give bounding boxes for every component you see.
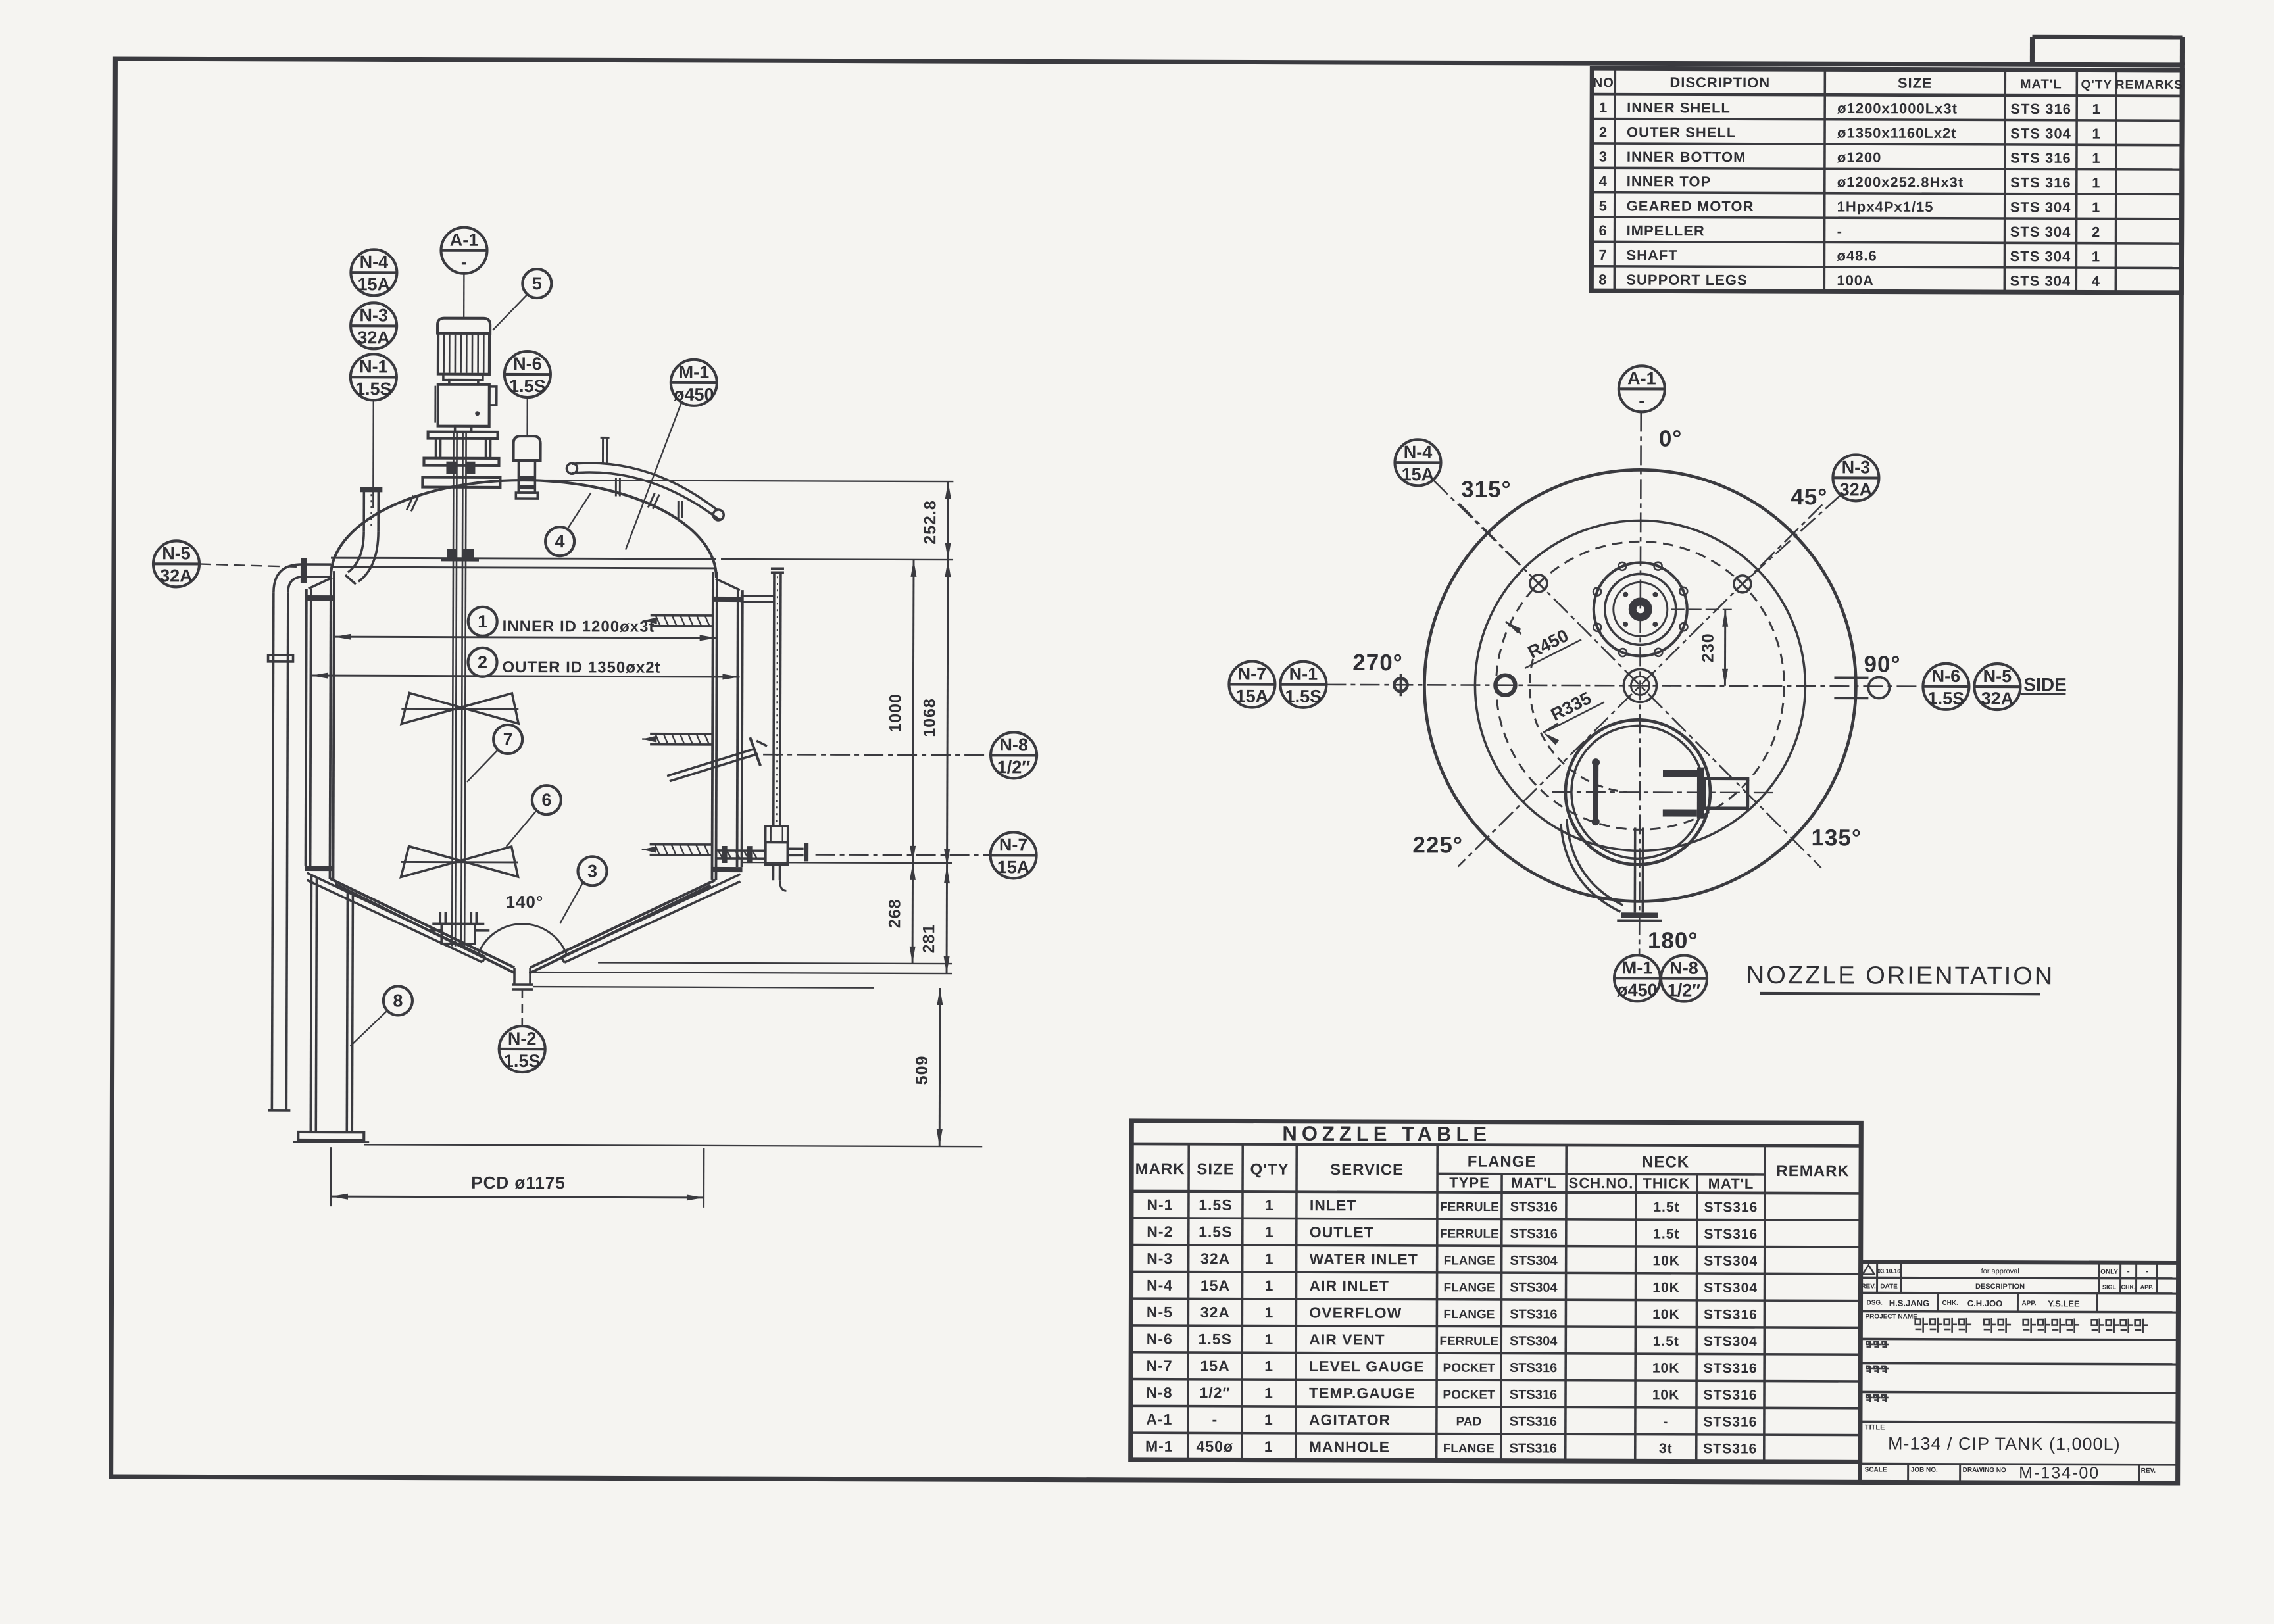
svg-text:1.5t: 1.5t [1653,1227,1679,1242]
svg-text:TEMP.GAUGE: TEMP.GAUGE [1309,1385,1416,1402]
svg-text:3: 3 [587,861,597,881]
svg-text:STS 304: STS 304 [2010,199,2071,215]
svg-text:REV.: REV. [1861,1283,1876,1290]
svg-text:SIDE: SIDE [2023,674,2066,695]
svg-text:SIGL: SIGL [2102,1284,2117,1291]
svg-text:STS304: STS304 [1704,1280,1758,1295]
svg-text:STS 316: STS 316 [2010,174,2071,191]
svg-text:-: - [1212,1411,1218,1428]
svg-text:1.5t: 1.5t [1653,1200,1679,1215]
svg-text:-: - [1639,391,1644,410]
svg-text:STS316: STS316 [1703,1414,1757,1429]
svg-text:AIR VENT: AIR VENT [1309,1331,1385,1348]
svg-text:SIZE: SIZE [1197,1160,1234,1178]
svg-text:8: 8 [1598,271,1607,287]
svg-text:ø1200: ø1200 [1837,149,1881,166]
svg-text:TYPE: TYPE [1449,1174,1490,1191]
svg-text:1000: 1000 [886,693,904,733]
svg-text:N-2: N-2 [508,1029,537,1048]
svg-text:N-1: N-1 [359,357,388,376]
svg-text:1: 1 [1264,1385,1273,1402]
svg-text:1.5S: 1.5S [504,1051,541,1071]
svg-text:4: 4 [555,531,565,551]
svg-text:ø48.6: ø48.6 [1837,247,1877,264]
svg-text:SCH.NO.: SCH.NO. [1569,1175,1634,1191]
svg-text:NECK: NECK [1642,1153,1689,1171]
svg-text:STS316: STS316 [1703,1441,1757,1456]
svg-text:STS316: STS316 [1704,1200,1758,1215]
svg-text:32A: 32A [357,328,390,347]
svg-text:1.5S: 1.5S [1199,1331,1232,1348]
svg-text:APP.: APP. [2021,1300,2036,1307]
svg-text:15A: 15A [1402,464,1435,484]
svg-text:PROJECT NAME: PROJECT NAME [1865,1313,1917,1320]
svg-text:SIZE: SIZE [1898,75,1933,91]
svg-text:PAD: PAD [1456,1415,1482,1429]
svg-text:DATE: DATE [1880,1283,1898,1291]
svg-text:1: 1 [1265,1277,1274,1294]
svg-text:268: 268 [885,898,904,928]
svg-text:1: 1 [1264,1304,1273,1321]
svg-text:STS 316: STS 316 [2010,150,2071,166]
svg-text:509: 509 [913,1056,931,1085]
svg-text:281: 281 [920,924,938,954]
svg-text:MANHOLE: MANHOLE [1309,1438,1390,1455]
svg-text:OUTLET: OUTLET [1310,1223,1374,1241]
svg-text:1Hpx4Px1/15: 1Hpx4Px1/15 [1837,199,1934,215]
svg-text:STS316: STS316 [1510,1227,1558,1241]
svg-text:N-3: N-3 [359,305,388,325]
svg-text:STS316: STS316 [1510,1361,1557,1375]
svg-text:FLANGE: FLANGE [1443,1442,1495,1456]
svg-text:32A: 32A [1200,1250,1230,1267]
svg-text:STS 304: STS 304 [2010,125,2071,141]
svg-text:1: 1 [1264,1438,1273,1455]
svg-text:FERRULE: FERRULE [1439,1335,1498,1348]
svg-text:REV.: REV. [2141,1467,2156,1475]
svg-text:N-5: N-5 [1147,1304,1173,1321]
svg-text:1: 1 [1264,1358,1273,1375]
svg-text:32A: 32A [1200,1304,1230,1321]
svg-text:15A: 15A [358,274,391,294]
svg-text:MARK: MARK [1135,1160,1185,1178]
svg-text:FERRULE: FERRULE [1440,1200,1499,1214]
svg-text:POCKET: POCKET [1443,1388,1495,1402]
svg-text:A-1: A-1 [450,230,479,250]
svg-text:C.H.JOO: C.H.JOO [1967,1298,2003,1308]
svg-text:N-6: N-6 [513,354,542,374]
svg-text:GEARED MOTOR: GEARED MOTOR [1627,197,1754,214]
svg-text:MAT'L: MAT'L [2020,77,2062,91]
svg-text:15A: 15A [1236,686,1269,706]
svg-text:1: 1 [1264,1411,1273,1428]
svg-text:DRAWING NO: DRAWING NO [1963,1467,2006,1474]
svg-text:N-4: N-4 [1404,442,1433,462]
svg-text:N-4: N-4 [1147,1277,1173,1294]
svg-text:32A: 32A [1840,480,1873,499]
svg-text:N-5: N-5 [162,543,191,563]
svg-text:1: 1 [2092,199,2100,216]
svg-text:NOZZLE TABLE: NOZZLE TABLE [1282,1122,1491,1146]
svg-text:STS316: STS316 [1704,1388,1758,1403]
svg-text:NOZZLE ORIENTATION: NOZZLE ORIENTATION [1746,962,2055,990]
svg-text:STS316: STS316 [1510,1307,1557,1321]
svg-text:A-1: A-1 [1627,368,1656,388]
svg-text:STS304: STS304 [1510,1281,1558,1295]
svg-text:15A: 15A [1200,1277,1230,1294]
svg-text:THICK: THICK [1643,1175,1690,1191]
svg-text:OUTER SHELL: OUTER SHELL [1627,124,1736,141]
svg-text:Q'TY: Q'TY [2081,78,2112,91]
svg-text:1: 1 [2092,101,2101,117]
svg-text:230: 230 [1699,633,1718,662]
svg-text:N-8: N-8 [1146,1384,1172,1401]
svg-text:225°: 225° [1412,832,1463,858]
svg-text:TITLE: TITLE [1865,1423,1885,1431]
svg-text:Y.S.LEE: Y.S.LEE [2048,1298,2080,1308]
svg-text:Q'TY: Q'TY [1250,1161,1289,1179]
svg-text:STS316: STS316 [1510,1415,1557,1429]
svg-text:APP.: APP. [2140,1284,2154,1291]
svg-text:STS304: STS304 [1704,1334,1758,1349]
svg-text:1.5t: 1.5t [1653,1334,1679,1349]
svg-text:2: 2 [1599,124,1608,140]
svg-text:AGITATOR: AGITATOR [1309,1412,1391,1429]
svg-text:M-1: M-1 [679,362,710,382]
svg-text:CHK.: CHK. [1942,1300,1958,1307]
svg-text:1: 1 [2092,248,2100,264]
svg-text:ø1200x252.8Hx3t: ø1200x252.8Hx3t [1837,174,1964,191]
svg-text:SCALE: SCALE [1865,1466,1887,1473]
svg-text:1: 1 [478,612,487,631]
svg-text:CHK.: CHK. [2121,1284,2136,1291]
svg-text:6: 6 [541,790,551,810]
svg-text:FLANGE: FLANGE [1443,1281,1495,1294]
svg-text:STS304: STS304 [1510,1254,1558,1268]
svg-text:1.5S: 1.5S [1199,1196,1232,1214]
svg-text:N-7: N-7 [1147,1357,1173,1374]
svg-text:1: 1 [1265,1250,1274,1267]
svg-text:STS316: STS316 [1510,1200,1558,1214]
svg-text:N-8: N-8 [999,735,1028,754]
svg-text:-: - [461,253,467,272]
svg-text:AIR INLET: AIR INLET [1310,1277,1390,1294]
svg-text:4: 4 [2092,273,2100,289]
svg-text:1: 1 [1599,99,1608,116]
svg-text:1: 1 [1265,1196,1274,1214]
svg-text:H.S.JANG: H.S.JANG [1889,1298,1929,1308]
svg-text:270°: 270° [1352,650,1403,676]
svg-text:STS316: STS316 [1510,1388,1557,1402]
svg-text:-: - [2146,1267,2148,1276]
svg-text:IMPELLER: IMPELLER [1627,222,1705,239]
svg-text:252.8: 252.8 [921,500,939,545]
svg-text:-: - [1837,223,1842,239]
svg-text:STS 316: STS 316 [2010,101,2071,117]
svg-text:1.5S: 1.5S [1928,689,1965,708]
svg-text:-: - [1663,1414,1668,1429]
svg-text:FLANGE: FLANGE [1444,1254,1495,1267]
svg-text:7: 7 [503,729,513,749]
svg-text:7: 7 [1598,247,1607,263]
svg-text:10K: 10K [1652,1307,1680,1322]
svg-text:10K: 10K [1652,1253,1680,1268]
svg-text:A-1: A-1 [1146,1411,1172,1428]
svg-text:N-6: N-6 [1932,666,1961,686]
svg-text:1: 1 [2092,150,2100,166]
svg-text:1.5S: 1.5S [1285,687,1322,706]
svg-text:for approval: for approval [1981,1267,2019,1275]
svg-text:INNER BOTTOM: INNER BOTTOM [1627,149,1746,166]
svg-text:DESCRIPTION: DESCRIPTION [1975,1283,2025,1291]
svg-text:STS 304: STS 304 [2010,248,2071,264]
svg-text:M-134-00: M-134-00 [2019,1464,2100,1482]
svg-text:0°: 0° [1659,426,1683,451]
svg-text:MAT'L: MAT'L [1511,1175,1557,1191]
svg-text:135°: 135° [1811,825,1862,850]
svg-text:2: 2 [2092,224,2100,240]
svg-text:REMARK: REMARK [1776,1162,1849,1180]
svg-text:3: 3 [1599,149,1608,165]
svg-text:32A: 32A [1981,689,2014,708]
svg-text:SUPPORT LEGS: SUPPORT LEGS [1626,272,1747,289]
svg-text:-: - [2127,1267,2130,1276]
svg-text:INLET: INLET [1310,1196,1357,1214]
svg-text:1.5S: 1.5S [355,379,392,399]
svg-text:N-1: N-1 [1289,664,1318,684]
svg-text:ø1350x1160Lx2t: ø1350x1160Lx2t [1837,124,1957,141]
svg-text:N-1: N-1 [1147,1196,1173,1213]
svg-text:N-8: N-8 [1669,958,1698,978]
svg-text:REMARKS: REMARKS [2115,78,2183,92]
svg-text:M-1: M-1 [1145,1438,1174,1455]
svg-text:DSG.: DSG. [1866,1299,1883,1306]
svg-text:315°: 315° [1461,477,1512,503]
svg-text:1: 1 [1265,1223,1274,1241]
svg-text:STS 304: STS 304 [2010,272,2071,289]
svg-text:PCD ø1175: PCD ø1175 [471,1173,565,1193]
svg-text:N-6: N-6 [1147,1330,1173,1347]
svg-text:90°: 90° [1864,651,1900,677]
svg-text:FLANGE: FLANGE [1443,1308,1495,1321]
svg-text:8: 8 [393,991,403,1010]
svg-text:INNER TOP: INNER TOP [1627,173,1711,189]
svg-text:STS316: STS316 [1704,1361,1758,1376]
svg-text:32A: 32A [160,566,193,585]
svg-text:450ø: 450ø [1197,1438,1234,1455]
svg-text:N-5: N-5 [1983,666,2012,686]
svg-text:INNER ID 1200øx3t: INNER ID 1200øx3t [503,618,655,636]
svg-text:POCKET: POCKET [1443,1362,1496,1375]
svg-text:2: 2 [478,652,487,672]
svg-text:WATER INLET: WATER INLET [1310,1250,1418,1268]
svg-text:03.10.16: 03.10.16 [1877,1268,1900,1275]
svg-text:FLANGE: FLANGE [1468,1153,1537,1171]
svg-text:10K: 10K [1652,1361,1680,1376]
svg-text:6: 6 [1598,222,1607,239]
svg-text:OVERFLOW: OVERFLOW [1309,1304,1402,1321]
svg-text:ONLY: ONLY [2100,1269,2118,1276]
svg-text:4: 4 [1599,173,1608,189]
svg-text:DISCRIPTION: DISCRIPTION [1669,74,1770,91]
svg-text:MAT'L: MAT'L [1708,1175,1754,1192]
svg-text:ø450: ø450 [1617,980,1658,1000]
svg-text:10K: 10K [1652,1387,1680,1402]
svg-text:5: 5 [532,274,542,293]
svg-text:OUTER ID 1350øx2t: OUTER ID 1350øx2t [502,658,660,677]
svg-text:STS316: STS316 [1704,1307,1758,1322]
svg-text:LEVEL GAUGE: LEVEL GAUGE [1309,1358,1425,1375]
svg-text:N-3: N-3 [1842,457,1871,477]
svg-text:1: 1 [1264,1331,1273,1348]
svg-text:10K: 10K [1652,1280,1680,1295]
svg-text:M-1: M-1 [1622,958,1653,977]
svg-text:STS304: STS304 [1510,1334,1558,1348]
svg-text:ø1200x1000Lx3t: ø1200x1000Lx3t [1837,100,1958,117]
svg-text:STS316: STS316 [1510,1441,1557,1456]
svg-text:STS316: STS316 [1704,1227,1758,1242]
svg-text:SHAFT: SHAFT [1626,247,1677,263]
svg-text:3t: 3t [1659,1441,1673,1456]
svg-text:1/2″: 1/2″ [997,757,1031,777]
svg-text:FERRULE: FERRULE [1440,1227,1499,1241]
svg-text:N-2: N-2 [1147,1223,1173,1240]
svg-text:1/2″: 1/2″ [1668,980,1701,1000]
svg-text:N-7: N-7 [999,835,1028,854]
svg-text:INNER SHELL: INNER SHELL [1627,99,1731,116]
svg-text:1: 1 [2092,126,2100,142]
svg-text:100A: 100A [1837,272,1874,289]
svg-text:STS304: STS304 [1704,1254,1758,1269]
svg-text:N-3: N-3 [1147,1250,1173,1267]
svg-text:M-134 / CIP TANK (1,000L): M-134 / CIP TANK (1,000L) [1888,1434,2121,1454]
svg-text:STS 304: STS 304 [2010,224,2071,240]
svg-text:1: 1 [2092,174,2100,191]
svg-text:180°: 180° [1648,927,1698,953]
svg-text:1.5S: 1.5S [509,376,546,396]
svg-text:1/2″: 1/2″ [1199,1384,1230,1401]
svg-text:N-7: N-7 [1238,664,1267,683]
svg-text:NO: NO [1593,76,1614,90]
svg-text:45°: 45° [1791,484,1827,510]
svg-text:SERVICE: SERVICE [1330,1161,1404,1179]
svg-text:5: 5 [1599,197,1608,214]
svg-text:1.5S: 1.5S [1199,1223,1232,1240]
svg-text:15A: 15A [1200,1357,1230,1374]
svg-text:JOB NO.: JOB NO. [1911,1467,1938,1474]
svg-text:15A: 15A [997,857,1030,877]
svg-text:N-4: N-4 [360,252,389,272]
svg-text:1068: 1068 [920,698,939,737]
svg-text:ø450: ø450 [674,385,714,405]
svg-text:140°: 140° [505,892,543,912]
